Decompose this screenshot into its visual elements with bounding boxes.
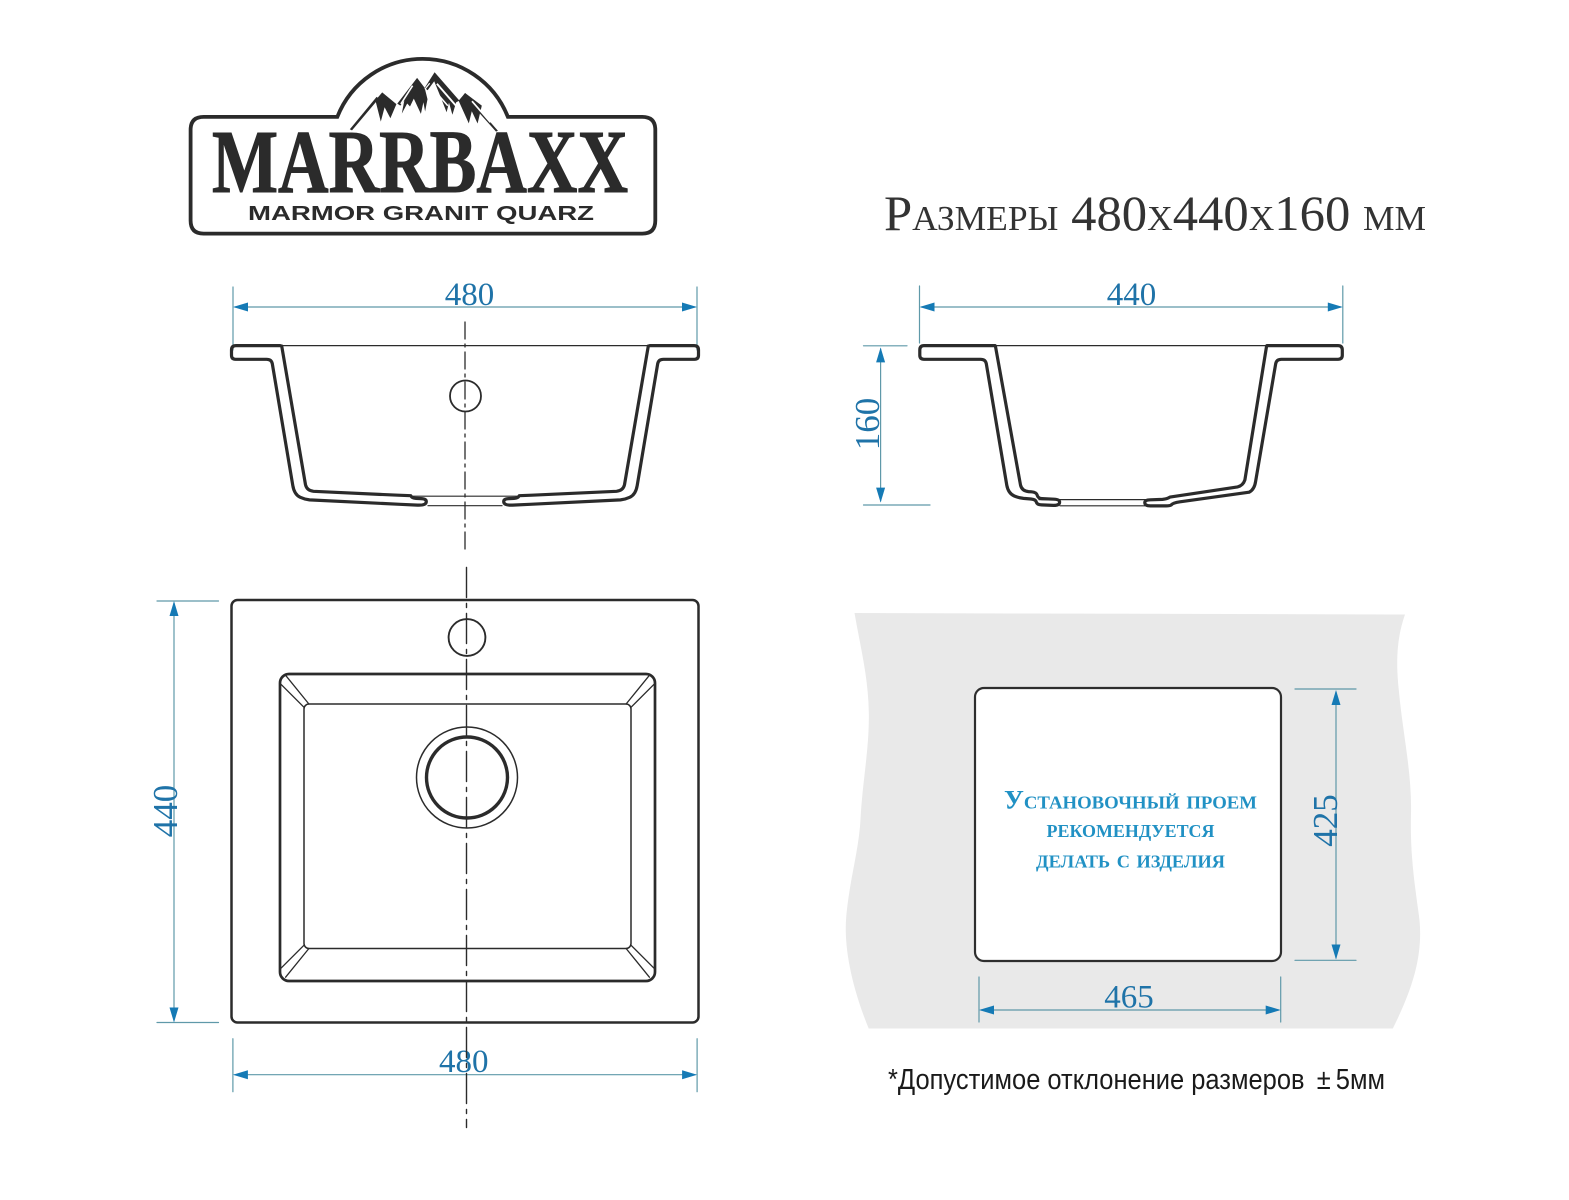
svg-text:делать с изделия: делать с изделия — [1036, 844, 1225, 873]
svg-text:440: 440 — [146, 785, 185, 838]
svg-text:425: 425 — [1306, 794, 1345, 847]
svg-text:160: 160 — [848, 398, 887, 451]
svg-text:465: 465 — [1104, 980, 1154, 1016]
svg-text:440: 440 — [1107, 277, 1157, 313]
svg-text:480: 480 — [445, 277, 495, 313]
svg-text:MARMOR GRANIT QUARZ: MARMOR GRANIT QUARZ — [248, 203, 594, 225]
svg-text:Установочный проем: Установочный проем — [1004, 786, 1257, 815]
svg-text:*Допустимое отклонение размеро: *Допустимое отклонение размеров ± 5мм — [888, 1064, 1385, 1096]
svg-text:рекомендуется: рекомендуется — [1047, 814, 1215, 843]
svg-text:Размеры 480х440х160 мм: Размеры 480х440х160 мм — [884, 185, 1426, 241]
svg-text:480: 480 — [439, 1044, 489, 1080]
svg-text:MARRBAXX: MARRBAXX — [212, 113, 628, 212]
